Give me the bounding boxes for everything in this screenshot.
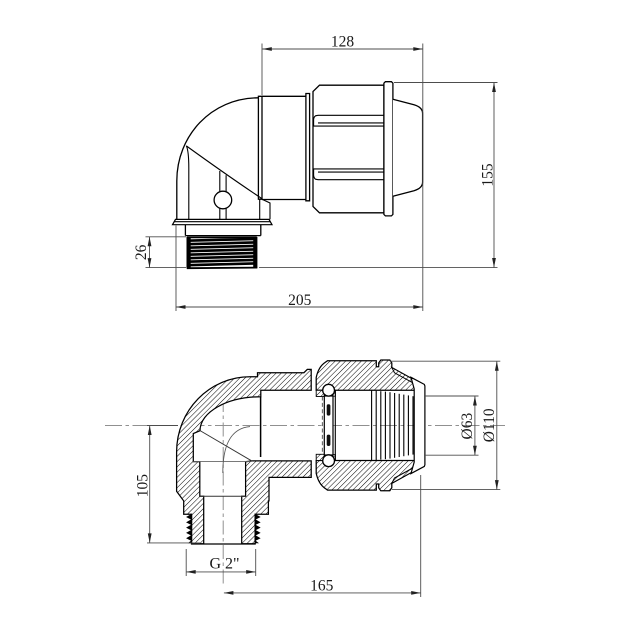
svg-text:G 2": G 2" <box>209 556 239 573</box>
svg-text:128: 128 <box>331 33 355 50</box>
svg-text:205: 205 <box>288 292 312 309</box>
svg-text:155: 155 <box>479 163 496 187</box>
svg-text:165: 165 <box>310 578 334 595</box>
svg-text:Ø63: Ø63 <box>459 413 476 440</box>
svg-text:Ø110: Ø110 <box>481 408 498 442</box>
svg-text:26: 26 <box>133 244 150 260</box>
svg-text:105: 105 <box>134 474 151 498</box>
